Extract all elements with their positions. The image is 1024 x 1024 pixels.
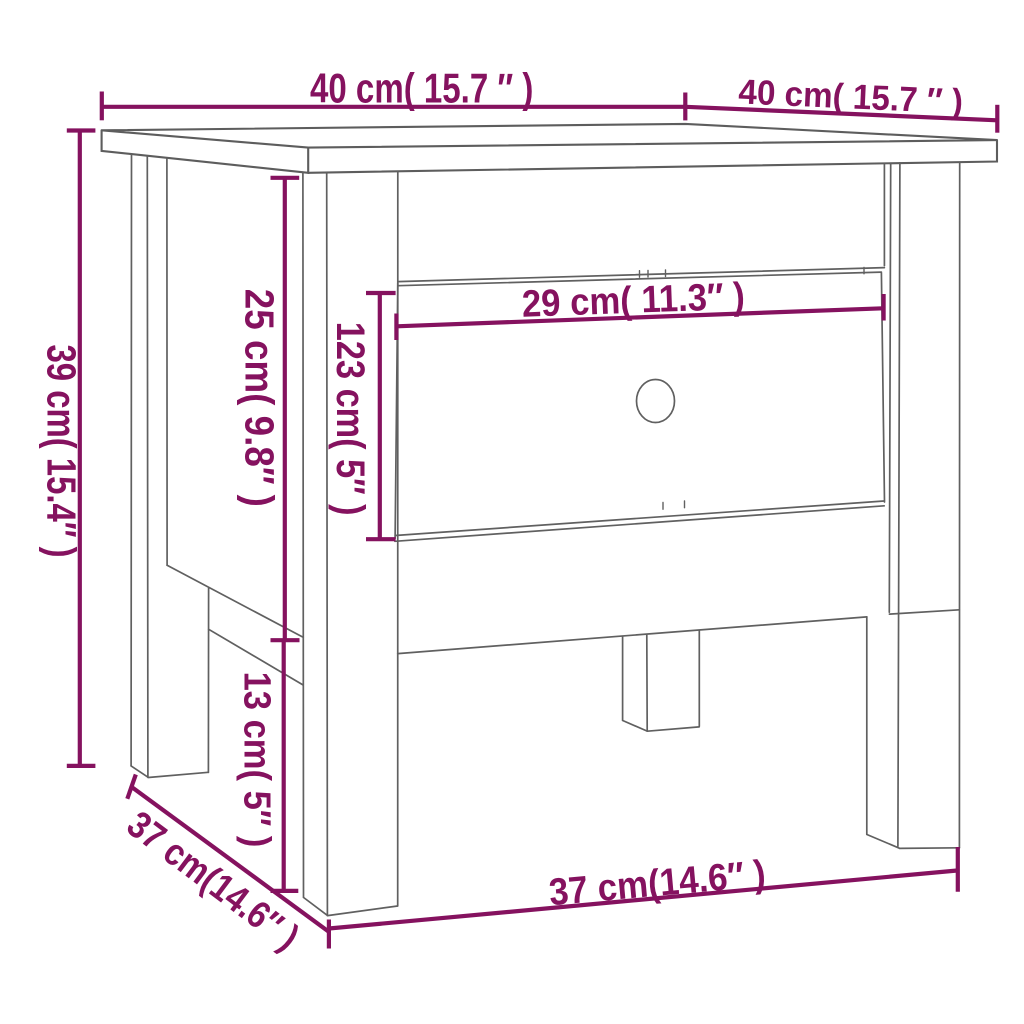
- svg-text:123 cm( 5″ ): 123 cm( 5″ ): [328, 322, 373, 516]
- svg-text:40 cm( 15.7 ″ ): 40 cm( 15.7 ″ ): [310, 66, 533, 113]
- svg-text:13 cm( 5″ ): 13 cm( 5″ ): [236, 672, 279, 848]
- svg-text:29 cm( 11.3″ ): 29 cm( 11.3″ ): [521, 274, 745, 325]
- svg-text:25 cm( 9.8″ ): 25 cm( 9.8″ ): [236, 289, 281, 507]
- svg-text:39 cm( 15.4″ ): 39 cm( 15.4″ ): [39, 345, 85, 558]
